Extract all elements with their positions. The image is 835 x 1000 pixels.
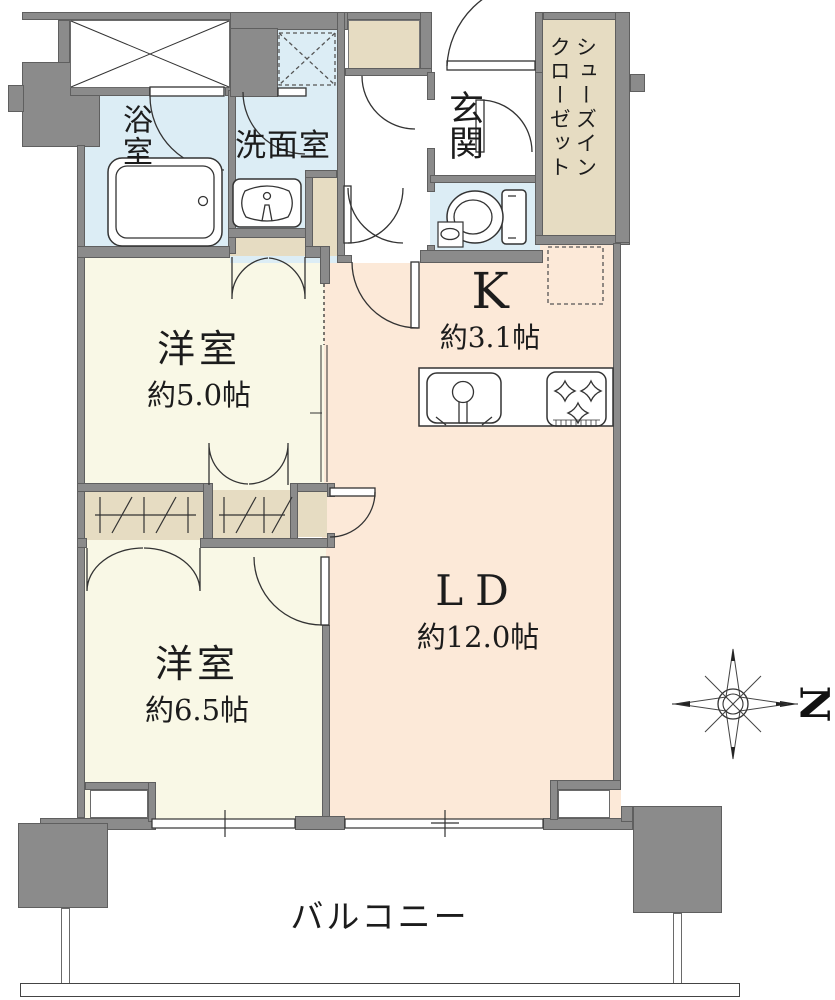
- closet-b: [213, 490, 290, 538]
- balcony-divider: [61, 908, 70, 984]
- washroom-sill: [230, 238, 305, 256]
- wall: [230, 28, 278, 97]
- balcony-divider: [673, 913, 682, 984]
- wall: [337, 255, 352, 263]
- wall: [337, 12, 345, 263]
- wall: [322, 625, 330, 828]
- wall: [148, 782, 156, 822]
- balcony-railing: [20, 983, 740, 997]
- wall: [228, 228, 313, 238]
- compass-north-label: N: [791, 686, 835, 723]
- wall: [200, 538, 335, 548]
- wall: [420, 12, 432, 76]
- wall: [22, 12, 430, 20]
- wall: [327, 483, 335, 497]
- room-label-balcony: バルコニー: [255, 890, 505, 938]
- wall: [295, 816, 345, 830]
- room-bath-floor: [85, 88, 236, 254]
- wall: [550, 780, 621, 790]
- wall: [615, 12, 630, 243]
- room-label-entrance: 玄関: [438, 90, 489, 160]
- pillar: [8, 85, 24, 112]
- wall: [430, 175, 540, 183]
- wall: [535, 72, 543, 243]
- room-label-washroom: 洗面室: [235, 120, 331, 165]
- wall: [77, 538, 87, 548]
- pillar: [18, 823, 108, 908]
- room-label-bedroom5: 洋室 約5.0帖: [120, 328, 278, 414]
- room-label-living: LD 約12.0帖: [388, 568, 568, 656]
- wall: [427, 72, 435, 100]
- entrance-porch: [430, 12, 540, 72]
- wall: [85, 782, 156, 790]
- wall: [621, 806, 633, 822]
- pillar: [58, 20, 70, 65]
- wall: [320, 246, 330, 284]
- washroom-side-cabinet: [313, 177, 337, 256]
- room-toilet-floor: [430, 178, 540, 255]
- pillar: [633, 806, 722, 913]
- void-box: [70, 20, 230, 88]
- wall: [427, 148, 435, 192]
- wall: [305, 170, 337, 178]
- wall: [630, 74, 645, 92]
- room-label-shoes-closet: シューズイン クローゼット: [546, 36, 599, 236]
- wall: [305, 170, 313, 258]
- compass-icon: N: [672, 649, 835, 759]
- storage-c: [298, 492, 327, 537]
- bedroom6-pillar-recess: [90, 790, 148, 818]
- ld-pillar-recess: [558, 790, 610, 818]
- room-label-bath: 浴室: [112, 104, 156, 168]
- room-label-bedroom6: 洋室 約6.5帖: [118, 643, 276, 729]
- wall: [327, 533, 335, 548]
- wall: [535, 12, 543, 77]
- hall-storage: [348, 20, 420, 70]
- wall: [345, 68, 432, 76]
- wall: [77, 483, 207, 492]
- wall: [550, 780, 558, 820]
- room-label-kitchen: K 約3.1帖: [420, 266, 560, 356]
- floor-plan: N 浴室 洗面室 玄関 シューズイン クローゼット K 約3.1帖 洋室 約5.…: [0, 0, 835, 1000]
- wall: [613, 243, 621, 790]
- wall: [77, 246, 230, 258]
- closet-a: [85, 490, 203, 540]
